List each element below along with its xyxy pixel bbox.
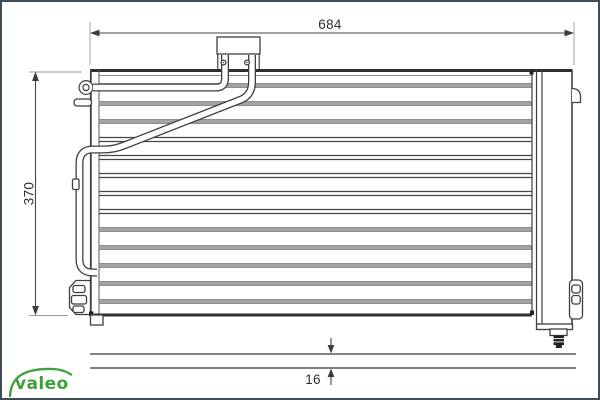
refrigerant-pipes bbox=[80, 55, 253, 273]
core-fin-tubes bbox=[99, 84, 532, 304]
dimension-width-label: 684 bbox=[312, 17, 348, 32]
condenser-technical-drawing bbox=[2, 2, 600, 400]
plug-tip bbox=[556, 345, 562, 348]
port-hole bbox=[72, 296, 87, 305]
drain-plug bbox=[550, 329, 567, 348]
arrowhead-right-icon bbox=[565, 30, 575, 37]
dimension-depth bbox=[328, 338, 335, 385]
pipe-clip bbox=[73, 179, 80, 190]
mount-foot bbox=[91, 315, 104, 325]
weld-mark-top bbox=[530, 70, 534, 75]
screw-dot bbox=[223, 62, 224, 63]
screenshot-frame: 684 370 16 valeo bbox=[0, 0, 600, 400]
fin-band bbox=[99, 102, 532, 106]
bracket-hole bbox=[572, 296, 580, 305]
fin-band bbox=[99, 282, 532, 286]
arrowhead-down-icon bbox=[328, 345, 335, 354]
side-profile-view bbox=[90, 354, 576, 368]
arrowhead-left-icon bbox=[90, 30, 100, 37]
side-tab bbox=[74, 99, 92, 106]
pipe-end-loop bbox=[81, 83, 91, 93]
port-hole bbox=[73, 286, 85, 293]
condenser-core bbox=[90, 70, 572, 315]
fin-band bbox=[99, 264, 532, 268]
bracket-hole bbox=[572, 285, 580, 293]
bracket-plate bbox=[217, 37, 260, 54]
dimension-height bbox=[29, 72, 82, 316]
screw-dot bbox=[246, 62, 247, 63]
fin-band bbox=[99, 120, 532, 124]
weld-mark-bottom bbox=[530, 311, 534, 316]
valeo-logo: valeo bbox=[8, 365, 80, 399]
fin-band bbox=[99, 300, 532, 304]
plug-thread bbox=[554, 336, 565, 346]
port-hole bbox=[73, 306, 84, 313]
fin-band bbox=[99, 246, 532, 250]
arrowhead-down-icon bbox=[32, 306, 39, 316]
mounting-pin bbox=[572, 89, 581, 103]
arrowhead-up-icon bbox=[328, 369, 335, 378]
valeo-logo-text: valeo bbox=[15, 374, 69, 394]
fin-band bbox=[99, 228, 532, 232]
dimension-height-label: 370 bbox=[22, 180, 37, 208]
connector-block bbox=[70, 281, 104, 326]
dimension-depth-label: 16 bbox=[300, 372, 326, 387]
plug-cap bbox=[550, 329, 567, 336]
arrowhead-up-icon bbox=[32, 72, 39, 82]
bottom-right-bracket bbox=[570, 280, 583, 319]
